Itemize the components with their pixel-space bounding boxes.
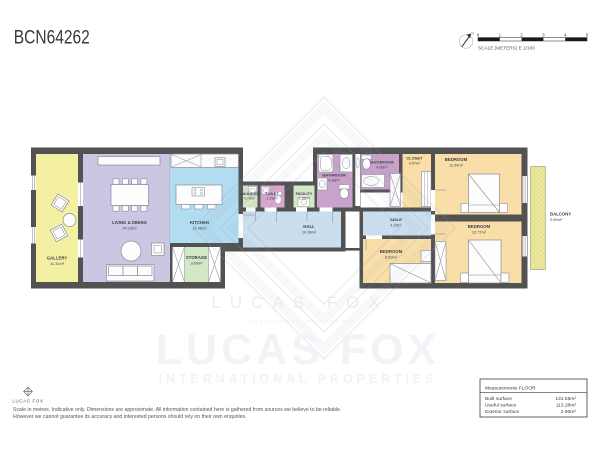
svg-text:CLOSET: CLOSET (406, 156, 423, 161)
svg-text:LUCAS FOX: LUCAS FOX (156, 326, 440, 374)
svg-text:1.16m²: 1.16m² (298, 197, 310, 201)
svg-text:LUCAS FOX: LUCAS FOX (211, 293, 388, 312)
svg-text:131.55m²: 131.55m² (555, 396, 576, 402)
svg-text:Built surface: Built surface (485, 396, 512, 402)
svg-text:STORAGE: STORAGE (186, 255, 207, 260)
svg-text:LUCAS FOX: LUCAS FOX (12, 399, 43, 404)
svg-text:2.90m²: 2.90m² (561, 409, 577, 415)
svg-text:GALLERY: GALLERY (47, 256, 68, 261)
svg-text:FACILITY: FACILITY (296, 192, 313, 196)
svg-text:SCALE (METERS) E 1/100: SCALE (METERS) E 1/100 (478, 46, 535, 51)
svg-text:INTERNATIONAL PROPERTIES: INTERNATIONAL PROPERTIES (159, 372, 438, 386)
svg-text:24.13m²: 24.13m² (122, 226, 137, 231)
svg-text:BCN64262: BCN64262 (14, 27, 90, 48)
svg-text:10.39m²: 10.39m² (302, 230, 317, 235)
svg-text:BATHROOM: BATHROOM (322, 173, 346, 178)
svg-text:3.60m²: 3.60m² (190, 261, 203, 266)
svg-text:4.57m²: 4.57m² (409, 162, 421, 166)
svg-text:BALCONY: BALCONY (550, 212, 571, 217)
svg-text:Scale in metres. Indicative on: Scale in metres. Indicative only. Dimens… (13, 407, 341, 413)
svg-text:12.77m²: 12.77m² (472, 229, 487, 234)
svg-text:BEDROOM: BEDROOM (445, 157, 468, 162)
svg-text:Exterior surface: Exterior surface (485, 409, 520, 415)
svg-text:4.26m²: 4.26m² (328, 179, 340, 183)
svg-text:BEDROOM: BEDROOM (468, 224, 491, 229)
svg-text:However we cannot guarantee it: However we cannot guarantee its accuracy… (13, 414, 247, 420)
svg-text:Measurements FLOOR: Measurements FLOOR (485, 386, 536, 392)
svg-text:Useful surface: Useful surface (485, 403, 517, 409)
svg-text:11.94m²: 11.94m² (449, 163, 464, 168)
svg-text:11.31m²: 11.31m² (50, 261, 65, 266)
svg-text:LIVING & DINING: LIVING & DINING (112, 220, 148, 225)
svg-text:HALL: HALL (303, 224, 315, 229)
svg-text:113.28m²: 113.28m² (556, 403, 577, 409)
svg-text:INTERNATIONAL PROPERTIES: INTERNATIONAL PROPERTIES (248, 319, 352, 324)
svg-text:2.90m²: 2.90m² (550, 217, 563, 222)
